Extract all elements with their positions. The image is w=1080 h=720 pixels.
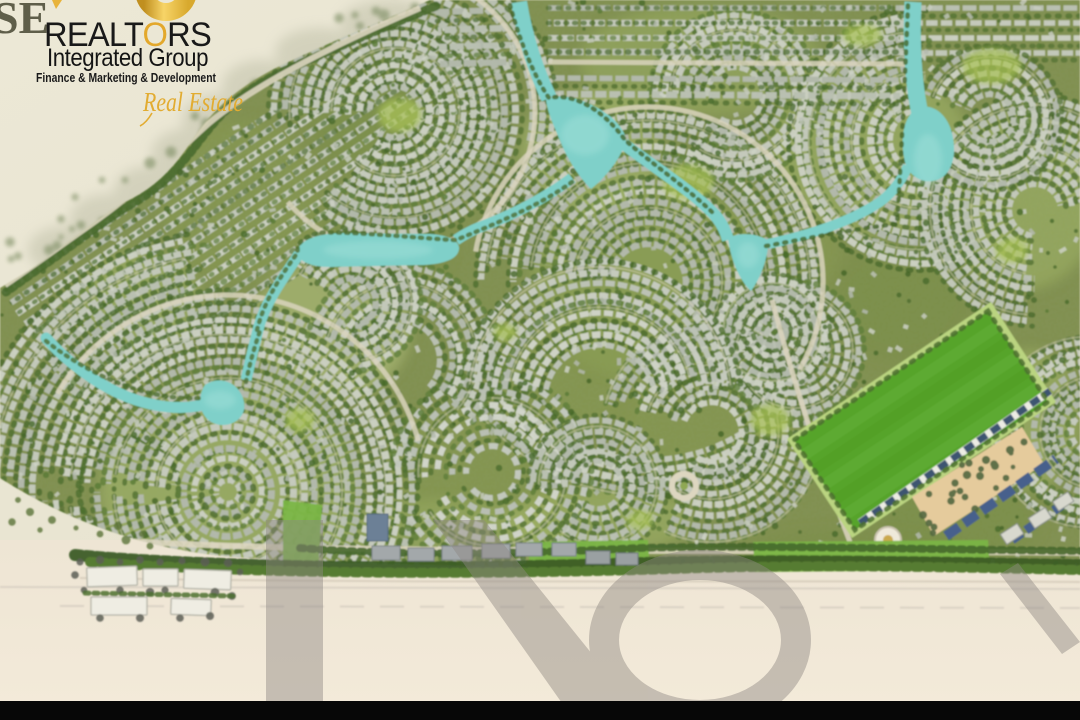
svg-text:Real Estate: Real Estate	[142, 87, 243, 117]
svg-text:SE: SE	[0, 0, 49, 43]
svg-text:Integrated Group: Integrated Group	[47, 44, 208, 72]
svg-text:Finance & Marketing & Developm: Finance & Marketing & Development	[36, 71, 217, 85]
